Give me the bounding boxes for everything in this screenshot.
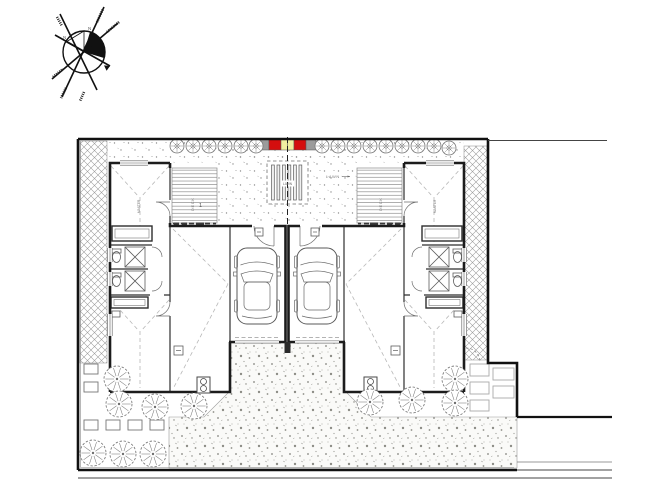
lawn-label-center: LAWN <box>283 182 293 186</box>
bedroom-label-right: MASTER <box>433 199 437 213</box>
letterbox-red-right <box>294 139 306 150</box>
deck-label-right: DECK <box>378 197 383 211</box>
site-plan-drawing: LAWN LAWN DECK DECK MASTER MASTER 1 <box>0 0 658 493</box>
letterbox-yellow-right <box>288 139 295 150</box>
north-arrow: N N <box>52 7 119 101</box>
compass-north-label-2: N <box>88 26 91 31</box>
marker-label: 1 <box>199 203 202 209</box>
bedroom-label-left: MASTER <box>137 199 141 213</box>
svg-text:LAWN: LAWN <box>326 174 340 179</box>
letterbox-yellow-left <box>281 139 288 150</box>
compass-north-label: N <box>63 35 66 40</box>
letterbox-red-left <box>269 139 281 150</box>
letterbox-gray-right <box>306 139 316 150</box>
stepping-pavers-right <box>470 364 514 411</box>
compass-arrowhead <box>104 65 110 70</box>
deck-label-left: DECK <box>190 197 195 211</box>
site-plan-canvas: LAWN LAWN DECK DECK MASTER MASTER 1 <box>0 0 658 493</box>
